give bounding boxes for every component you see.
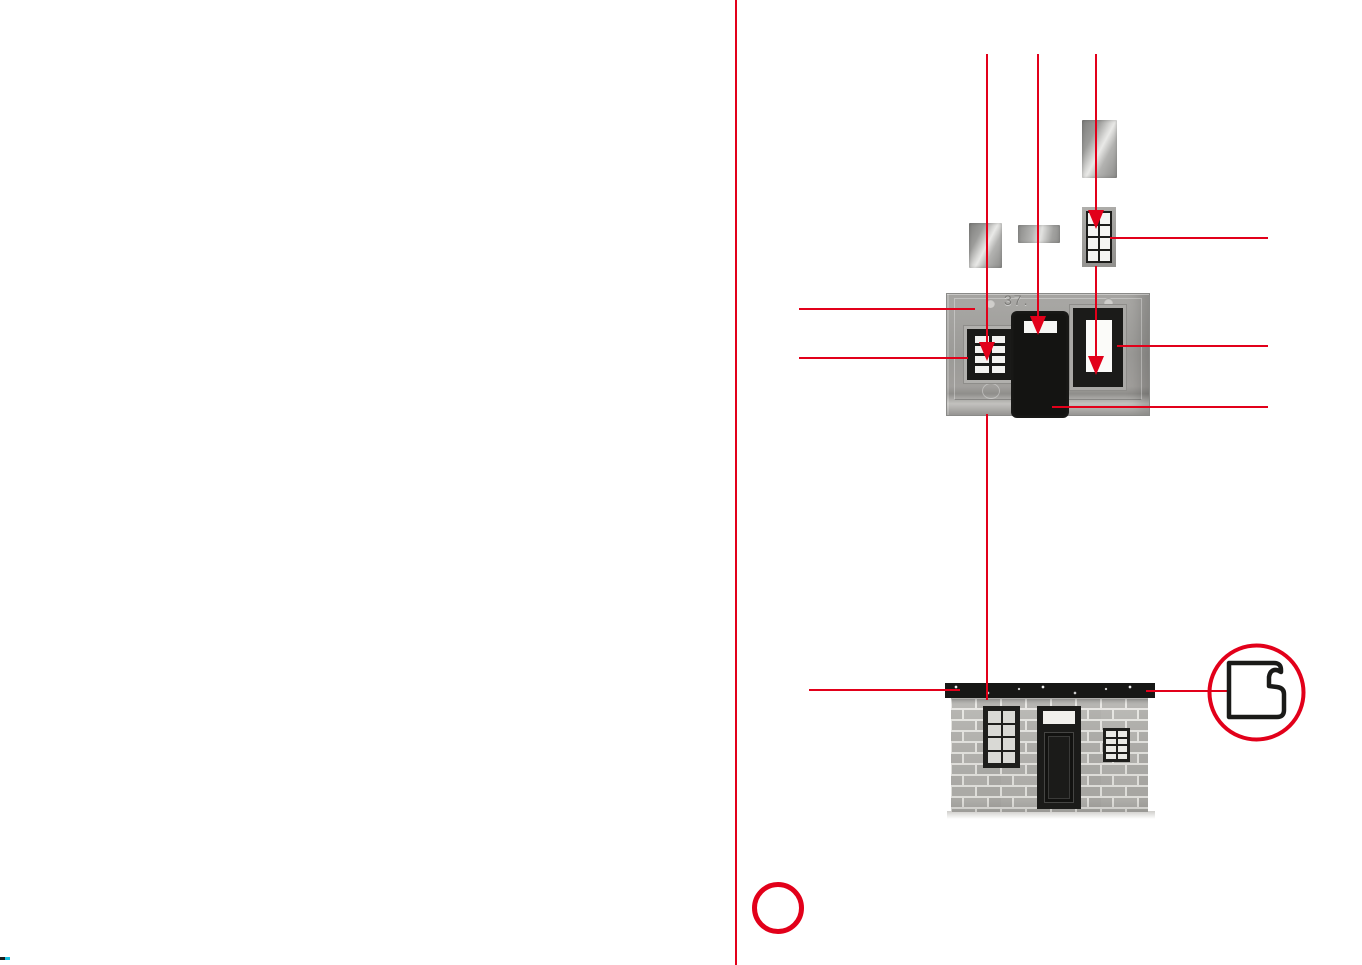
window-pane: [1118, 731, 1128, 737]
building-transom-window: [1043, 711, 1075, 724]
window-pane: [1003, 738, 1016, 750]
insert-arrow-window-frame: [1088, 210, 1104, 229]
mould-pin-mark: [1104, 298, 1113, 307]
wall-window-frame-right: [1073, 308, 1123, 387]
building-roof-strip: [945, 683, 1155, 698]
leader-line-glazing-large: [1095, 54, 1097, 210]
building-window-left: [983, 706, 1020, 768]
window-pane: [1003, 711, 1016, 723]
window-pane: [988, 725, 1001, 737]
insert-arrow-window-right: [1088, 356, 1104, 375]
window-pane: [1106, 739, 1116, 745]
mould-pin-mark-faint: [982, 383, 1000, 399]
window-pane: [975, 366, 989, 373]
window-pane: [988, 738, 1001, 750]
roof-profile-detail-circle: [1204, 640, 1309, 745]
window-pane: [1118, 746, 1128, 752]
window-pane: [1003, 752, 1016, 764]
building-window-right: [1103, 728, 1130, 762]
window-pane: [1088, 251, 1098, 262]
instruction-page: 37.: [0, 0, 1362, 965]
window-pane: [1100, 251, 1110, 262]
leader-line-frame-to-wall: [1095, 266, 1097, 356]
roof-moulding-profile-icon: [1229, 663, 1284, 717]
leader-line-window-left: [799, 357, 968, 359]
window-pane: [1088, 238, 1098, 249]
window-pane: [1003, 725, 1016, 737]
leader-line-glazing-small: [986, 54, 988, 342]
leader-line-wall-to-building: [986, 414, 988, 700]
window-pane: [1106, 731, 1116, 737]
building-door-leaf: [1044, 732, 1074, 803]
ground-shadow: [947, 811, 1155, 819]
window-pane: [992, 366, 1006, 373]
page-divider-line: [735, 0, 737, 965]
leader-line-door: [1052, 406, 1268, 408]
window-pane: [1106, 754, 1116, 760]
leader-line-window-frame-right: [1110, 237, 1268, 239]
page-marker-circle: [752, 882, 804, 934]
wall-part-back-view: 37.: [946, 293, 1150, 416]
insert-arrow-window-left: [979, 342, 995, 361]
window-pane: [988, 752, 1001, 764]
window-pane: [1118, 739, 1128, 745]
window-pane: [1118, 754, 1128, 760]
leader-line-window-right: [1117, 345, 1268, 347]
building-door: [1037, 706, 1081, 809]
window-pane: [1100, 238, 1110, 249]
registration-mark-cyan: [5, 957, 10, 960]
leader-line-wall-surface: [799, 308, 975, 310]
leader-line-roof-left: [809, 689, 960, 691]
glazing-pane-large: [1082, 120, 1117, 178]
insert-arrow-door-transom: [1030, 316, 1046, 335]
window-pane: [988, 711, 1001, 723]
window-pane: [1106, 746, 1116, 752]
wall-part-number: 37.: [1004, 292, 1029, 308]
leader-line-glazing-strip: [1037, 54, 1039, 316]
glazing-pane-strip: [1018, 225, 1060, 243]
